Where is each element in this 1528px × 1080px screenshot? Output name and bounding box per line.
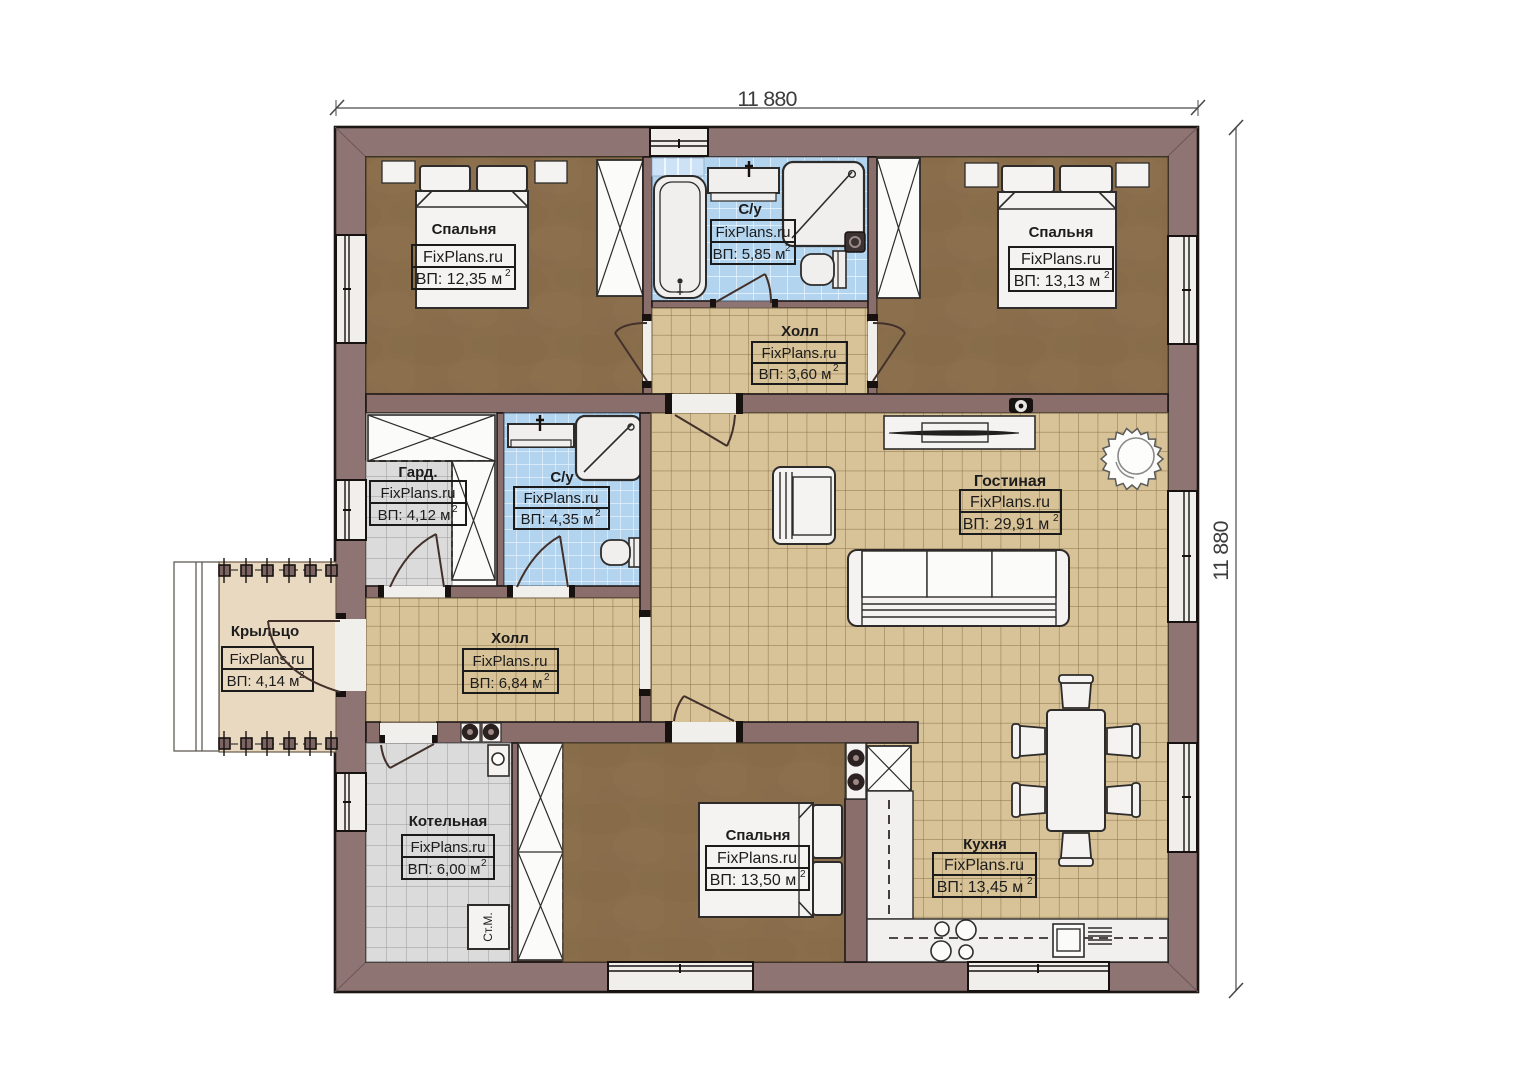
svg-text:2: 2 xyxy=(833,363,839,374)
svg-text:ВП: 13,50 м: ВП: 13,50 м xyxy=(710,872,797,889)
svg-text:С/у: С/у xyxy=(738,201,762,218)
svg-text:FixPlans.ru: FixPlans.ru xyxy=(229,651,304,668)
svg-text:Крыльцо: Крыльцо xyxy=(231,623,299,640)
svg-text:FixPlans.ru: FixPlans.ru xyxy=(717,850,797,867)
svg-text:FixPlans.ru: FixPlans.ru xyxy=(410,839,485,856)
svg-text:ВП: 13,45 м: ВП: 13,45 м xyxy=(937,879,1024,896)
svg-text:Котельная: Котельная xyxy=(409,813,488,830)
svg-text:FixPlans.ru: FixPlans.ru xyxy=(523,490,598,507)
svg-text:FixPlans.ru: FixPlans.ru xyxy=(761,345,836,362)
svg-text:Спальня: Спальня xyxy=(726,827,791,844)
svg-text:2: 2 xyxy=(1027,876,1033,887)
svg-text:Холл: Холл xyxy=(781,323,819,340)
svg-text:2: 2 xyxy=(800,869,806,880)
svg-text:2: 2 xyxy=(505,268,511,279)
svg-text:Спальня: Спальня xyxy=(432,221,497,238)
svg-text:FixPlans.ru: FixPlans.ru xyxy=(715,224,790,241)
svg-text:ВП: 12,35 м: ВП: 12,35 м xyxy=(416,271,503,288)
svg-text:FixPlans.ru: FixPlans.ru xyxy=(1021,251,1101,268)
svg-text:Кухня: Кухня xyxy=(963,836,1007,853)
svg-text:2: 2 xyxy=(481,858,487,869)
svg-text:ВП: 3,60 м: ВП: 3,60 м xyxy=(759,366,832,383)
svg-text:2: 2 xyxy=(452,504,458,515)
svg-text:FixPlans.ru: FixPlans.ru xyxy=(944,857,1024,874)
svg-text:Холл: Холл xyxy=(491,630,529,647)
svg-text:11 880: 11 880 xyxy=(1209,520,1233,580)
svg-text:ВП: 4,35 м: ВП: 4,35 м xyxy=(521,511,594,528)
svg-text:Гостиная: Гостиная xyxy=(974,473,1046,490)
svg-text:С/у: С/у xyxy=(550,469,574,486)
svg-text:FixPlans.ru: FixPlans.ru xyxy=(423,249,503,266)
svg-text:ВП: 4,14 м: ВП: 4,14 м xyxy=(227,673,300,690)
svg-text:2: 2 xyxy=(1104,270,1110,281)
svg-text:ВП: 29,91 м: ВП: 29,91 м xyxy=(963,516,1050,533)
svg-text:ВП: 4,12 м: ВП: 4,12 м xyxy=(378,507,451,524)
svg-text:FixPlans.ru: FixPlans.ru xyxy=(472,653,547,670)
svg-text:2: 2 xyxy=(544,672,550,683)
svg-text:2: 2 xyxy=(595,508,601,519)
svg-text:Гард.: Гард. xyxy=(398,464,437,481)
svg-text:ВП: 6,00 м: ВП: 6,00 м xyxy=(408,861,481,878)
svg-text:FixPlans.ru: FixPlans.ru xyxy=(380,485,455,502)
svg-text:Ст.М.: Ст.М. xyxy=(481,912,495,942)
svg-text:ВП: 6,84 м: ВП: 6,84 м xyxy=(470,675,543,692)
svg-text:FixPlans.ru: FixPlans.ru xyxy=(970,494,1050,511)
svg-text:ВП: 13,13 м: ВП: 13,13 м xyxy=(1014,273,1101,290)
svg-text:2: 2 xyxy=(785,243,791,254)
svg-text:Спальня: Спальня xyxy=(1029,224,1094,241)
svg-text:11 880: 11 880 xyxy=(737,87,797,111)
svg-text:2: 2 xyxy=(1053,513,1059,524)
svg-text:ВП: 5,85 м: ВП: 5,85 м xyxy=(713,246,786,263)
